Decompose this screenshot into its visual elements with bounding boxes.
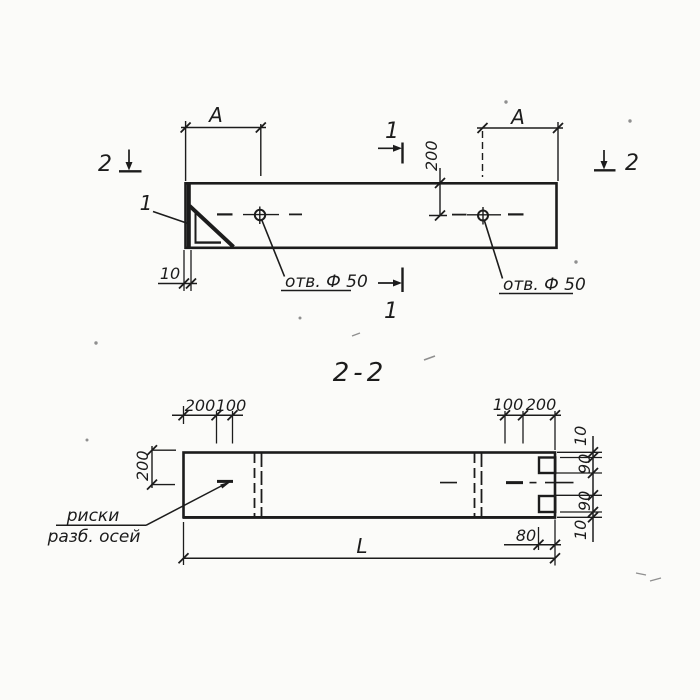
- dim-10-plate-label: 10: [160, 264, 180, 283]
- dim-top-left-200-label: 200: [185, 396, 216, 415]
- section-title: 2-2: [333, 358, 387, 388]
- section-2-left-label: 2: [98, 152, 112, 177]
- hole-callout-right-label: отв. Ф 50: [503, 275, 586, 295]
- plan-view: 1 A: [98, 103, 639, 324]
- hidden-hole-left: [255, 453, 262, 516]
- dim-top-left: 200 100: [172, 396, 246, 444]
- arrow-down-icon: [126, 162, 133, 171]
- section-mark-2-right: 2: [594, 150, 639, 176]
- gusset-plate: [190, 206, 234, 247]
- dim-right-10-bottom-label: 10: [571, 520, 590, 540]
- axis-label-line2: разб. осей: [47, 527, 141, 547]
- notch-bottom: [539, 496, 555, 512]
- section-2-right-label: 2: [625, 151, 639, 176]
- dim-a-left-label: A: [207, 103, 223, 127]
- technical-drawing: 1 A: [0, 0, 700, 700]
- dim-200-section-left: 200: [133, 445, 176, 489]
- dim-200-section-label: 200: [133, 450, 152, 481]
- beam-outline-section: [184, 453, 556, 518]
- hole-callout-left-label: отв. Ф 50: [285, 272, 368, 292]
- dim-top-right-200-label: 200: [526, 395, 557, 414]
- section-1-bottom-label: 1: [384, 299, 398, 324]
- dim-10-plate: 10: [158, 250, 197, 291]
- dim-a-left: A: [181, 103, 266, 181]
- dim-top-left-100-label: 100: [216, 396, 247, 415]
- arrow-down-icon: [601, 161, 608, 170]
- dim-right-90-top-label: 90: [575, 454, 594, 474]
- beam-outline-plan: [186, 183, 557, 248]
- detail-mark-label: 1: [140, 191, 153, 215]
- hole-left: [217, 207, 302, 225]
- dim-right-stack: 10 90 90 10: [556, 426, 602, 542]
- notch-top: [539, 458, 555, 474]
- dim-80-label: 80: [516, 526, 536, 545]
- dim-top-right: 100 200: [493, 395, 561, 450]
- section-mark-1-top: 1: [378, 119, 403, 164]
- arrow-right-icon: [393, 145, 402, 152]
- dim-top-right-100-label: 100: [493, 395, 524, 414]
- hole-callout-right: отв. Ф 50: [485, 221, 586, 295]
- section-1-top-label: 1: [385, 119, 399, 144]
- detail-1-callout: 1: [140, 191, 188, 224]
- dim-a-right: A: [477, 105, 563, 181]
- hole-callout-left: отв. Ф 50: [262, 221, 368, 293]
- dim-200-plan-label: 200: [422, 140, 441, 171]
- dim-a-right-label: A: [509, 105, 525, 129]
- dim-length: L: [179, 520, 561, 566]
- axis-callout: риски разб. осей: [47, 482, 231, 548]
- hole-right: [452, 207, 524, 225]
- dim-length-label: L: [356, 534, 367, 558]
- dim-right-10-top-label: 10: [571, 426, 590, 446]
- arrow-right-icon: [393, 280, 402, 287]
- dim-200-plan: 200: [422, 140, 447, 220]
- section-mark-2-left: 2: [98, 150, 142, 178]
- dim-right-90-bottom-label: 90: [575, 491, 594, 511]
- section-mark-1-bottom: 1: [378, 268, 403, 325]
- drawing-sheet: 1 A: [0, 0, 700, 700]
- section-view: риски разб. осей 200 200 100: [47, 395, 602, 566]
- axis-label-line1: риски: [66, 506, 120, 526]
- hidden-hole-right: [475, 453, 482, 516]
- dim-80: 80: [504, 526, 561, 550]
